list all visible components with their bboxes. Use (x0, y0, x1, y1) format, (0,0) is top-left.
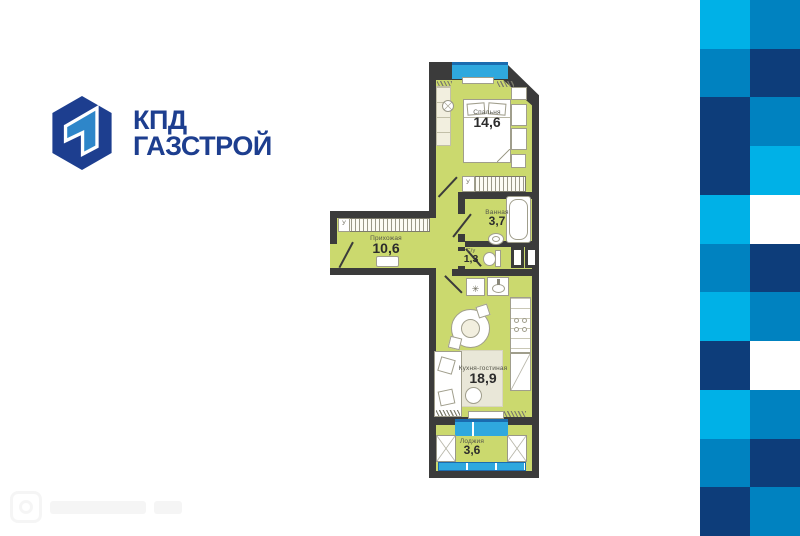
loggia-cabinet (507, 435, 527, 462)
brand-name-line1: КПД (133, 107, 272, 133)
wardrobe-mark: У (342, 221, 346, 227)
fridge (510, 353, 531, 391)
kpd-gazstroy-logo-icon (45, 93, 119, 173)
dresser (511, 128, 527, 150)
toilet-tank (495, 250, 501, 267)
pattern-cell (750, 341, 800, 390)
pattern-cell (700, 195, 750, 244)
hob-ring (522, 318, 527, 323)
wardrobe-mark: У (466, 180, 470, 186)
wall-bath-left-b (458, 234, 465, 242)
dresser (511, 104, 527, 126)
pattern-cell (700, 292, 750, 341)
faucet-icon (497, 279, 500, 285)
sofa-cushion (438, 389, 456, 407)
wardrobe-cell: У (462, 176, 475, 192)
room-label-bathroom: Ванная 3,7 (485, 209, 508, 227)
loggia-cabinet (436, 435, 456, 462)
nightstand (511, 87, 527, 100)
burner-icon: ✳ (472, 284, 480, 294)
window-mullion (472, 422, 474, 436)
room-label-hallway: Прихожая 10,6 (370, 235, 402, 255)
sofa-cushion (437, 356, 456, 375)
brand-name-line2: ГАЗСТРОЙ (133, 133, 272, 159)
blanket-fold (497, 149, 510, 162)
watermark-text-blob (50, 501, 146, 514)
pattern-cell (700, 390, 750, 439)
pattern-cell (700, 244, 750, 293)
wardrobe-cell: У (338, 218, 350, 232)
stove: ✳ (466, 278, 485, 296)
room-label-kitchen-living: Кухня-гостиная 18,9 (459, 365, 508, 385)
watermark-text-blob (154, 501, 182, 514)
pattern-cell (700, 97, 750, 146)
pattern-cell (750, 487, 800, 536)
duct-shaft (525, 247, 538, 268)
loggia-door-window (455, 419, 508, 436)
side-table (465, 387, 482, 404)
plate (461, 319, 480, 338)
pattern-cell (750, 97, 800, 146)
radiator (504, 411, 526, 417)
loggia-glazing (438, 462, 526, 471)
pattern-cell (700, 341, 750, 390)
nightstand (511, 154, 526, 168)
entrance-opening (330, 244, 337, 268)
pattern-cell (750, 292, 800, 341)
pattern-cell (750, 390, 800, 439)
pattern-cell (750, 146, 800, 195)
sink-bowl (492, 236, 500, 242)
window-sill (462, 77, 494, 84)
hallway-wardrobe (338, 218, 430, 232)
kitchen-counter (510, 297, 531, 353)
duct-shaft (511, 247, 524, 268)
pattern-cell (750, 0, 800, 49)
brand-name: КПД ГАЗСТРОЙ (133, 107, 272, 159)
pattern-cell (700, 487, 750, 536)
watermark-icon (10, 491, 42, 523)
room-label-loggia: Лоджия 3,6 (460, 438, 484, 456)
kitchen-sink (487, 277, 509, 296)
pattern-cell (700, 49, 750, 98)
hob-ring (514, 318, 519, 323)
pattern-cell (700, 146, 750, 195)
hob-ring (522, 327, 527, 332)
ceiling-lamp-icon (442, 100, 454, 112)
window-sill (468, 411, 504, 419)
pattern (700, 0, 800, 536)
pattern-cell (700, 439, 750, 488)
room-label-bedroom: Спальня 14,6 (473, 109, 501, 129)
hallway-bench (376, 256, 399, 267)
hob-ring (514, 327, 519, 332)
radiator (436, 410, 460, 416)
watermark (10, 488, 182, 526)
bedroom-wardrobe (436, 86, 451, 146)
pattern-cell (750, 439, 800, 488)
brand-logo: КПД ГАЗСТРОЙ (45, 93, 272, 173)
pattern-cell (700, 0, 750, 49)
bathtub (506, 196, 531, 243)
pattern-cell (750, 49, 800, 98)
pattern-cell (750, 244, 800, 293)
wall-bath-left-a (458, 199, 465, 214)
wall-kitchen-top (452, 269, 532, 276)
page: КПД ГАЗСТРОЙ У (0, 0, 800, 536)
room-label-wc: С/у 1,3 (464, 248, 479, 264)
bathroom-sink (488, 233, 504, 245)
bathtub-inner (509, 199, 528, 240)
pattern-cell (750, 195, 800, 244)
sink-bowl (492, 284, 505, 293)
